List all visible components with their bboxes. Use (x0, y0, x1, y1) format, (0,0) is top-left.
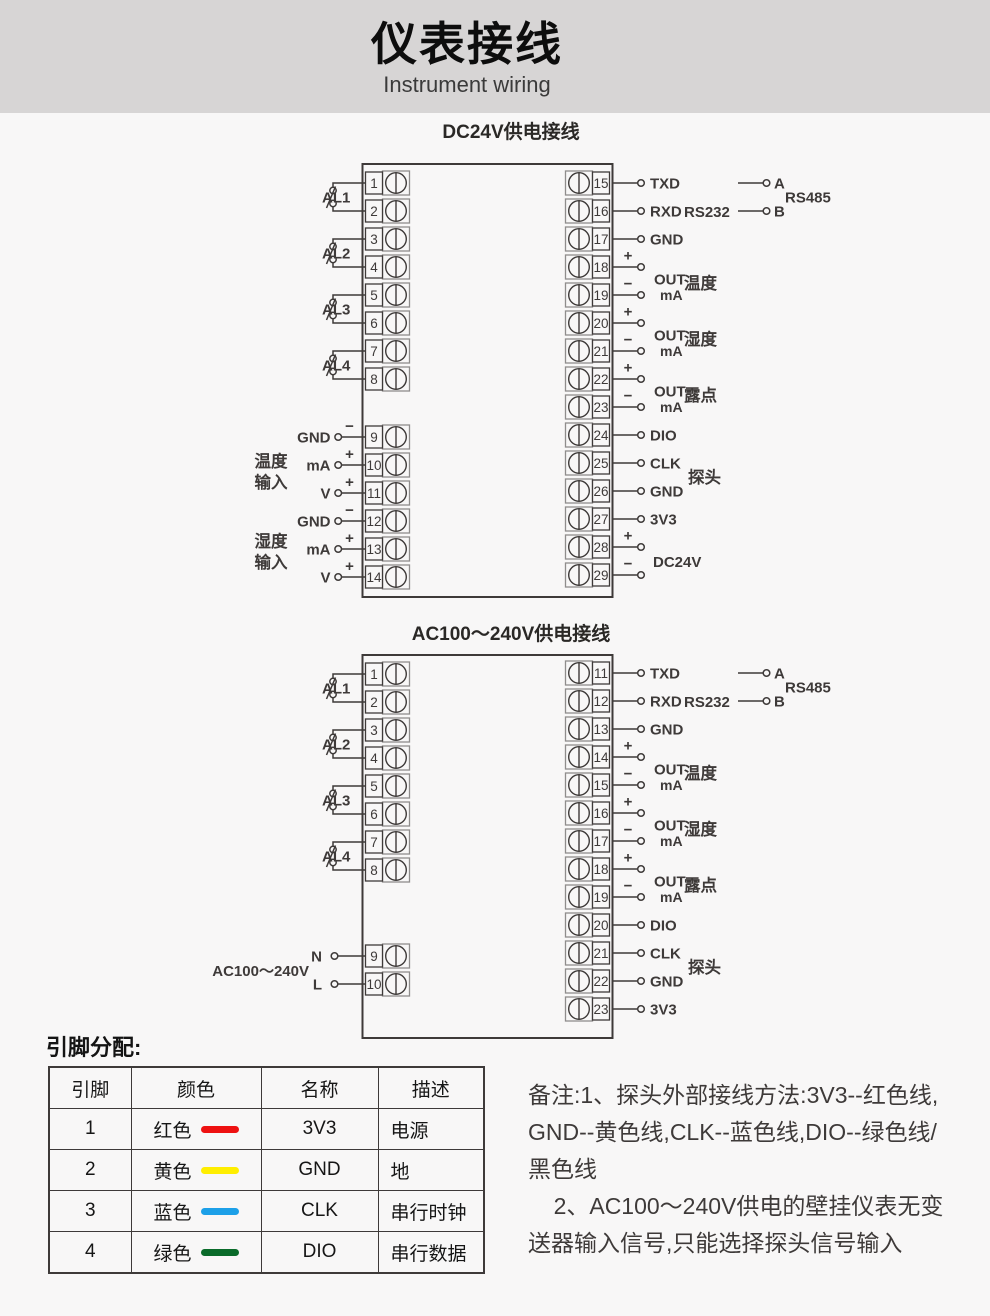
svg-text:温度: 温度 (255, 451, 289, 471)
svg-text:湿度: 湿度 (255, 531, 289, 551)
svg-text:DIO: DIO (650, 428, 677, 445)
svg-text:12: 12 (366, 514, 381, 529)
svg-text:OUT: OUT (654, 818, 686, 835)
svg-text:24: 24 (593, 428, 609, 443)
svg-text:AL3: AL3 (322, 302, 350, 319)
svg-text:温度: 温度 (684, 273, 718, 293)
svg-text:22: 22 (593, 372, 608, 387)
svg-text:AL1: AL1 (322, 190, 350, 207)
svg-text:GND: GND (297, 430, 331, 447)
svg-text:RS485: RS485 (785, 680, 831, 697)
wire-color-cell: 绿色 (131, 1232, 261, 1274)
svg-text:DC24V: DC24V (653, 554, 701, 571)
svg-text:+: + (345, 446, 354, 463)
svg-text:18: 18 (593, 260, 608, 275)
table-header-cell-2: 名称 (261, 1067, 378, 1109)
svg-text:23: 23 (593, 400, 608, 415)
ac-wiring-diagram: 1234567891011121314151617181920212223AL1… (212, 655, 831, 1038)
svg-text:21: 21 (593, 344, 608, 359)
svg-text:17: 17 (593, 834, 608, 849)
svg-text:+: + (345, 558, 354, 575)
wire-color-cell: 红色 (131, 1109, 261, 1150)
signal-name-cell: CLK (261, 1191, 378, 1232)
svg-text:CLK: CLK (650, 946, 681, 963)
signal-desc-cell: 串行时钟 (378, 1191, 484, 1232)
table-body: 1红色3V3电源2黄色GND地3蓝色CLK串行时钟4绿色DIO串行数据 (49, 1109, 484, 1274)
svg-text:GND: GND (650, 484, 684, 501)
svg-text:+: + (624, 794, 633, 811)
signal-name-cell: GND (261, 1150, 378, 1191)
svg-text:OUT: OUT (654, 384, 686, 401)
svg-text:+: + (624, 360, 633, 377)
svg-text:N: N (311, 949, 322, 966)
svg-text:TXD: TXD (650, 176, 680, 193)
svg-text:GND: GND (650, 722, 684, 739)
note-line: 备注:1、探头外部接线方法:3V3--红色线, (528, 1077, 986, 1114)
svg-text:B: B (774, 694, 785, 711)
signal-desc-cell: 串行数据 (378, 1232, 484, 1274)
svg-text:−: − (624, 556, 633, 573)
svg-text:−: − (624, 822, 633, 839)
svg-text:−: − (624, 276, 633, 293)
svg-text:8: 8 (370, 372, 378, 387)
svg-text:RS485: RS485 (785, 190, 831, 207)
wire-color-name: 绿色 (153, 1239, 191, 1266)
svg-text:9: 9 (370, 430, 378, 445)
svg-text:温度: 温度 (684, 763, 718, 783)
svg-text:29: 29 (593, 568, 608, 583)
svg-text:20: 20 (593, 316, 608, 331)
svg-text:mA: mA (660, 889, 683, 905)
diagram1-title: DC24V供电接线 (442, 117, 579, 144)
svg-text:25: 25 (593, 456, 608, 471)
svg-text:mA: mA (660, 399, 683, 415)
notes-text: 备注:1、探头外部接线方法:3V3--红色线,GND--黄色线,CLK--蓝色线… (528, 1077, 986, 1262)
svg-text:27: 27 (593, 512, 608, 527)
svg-text:GND: GND (650, 232, 684, 249)
svg-text:DIO: DIO (650, 918, 677, 935)
note-line: GND--黄色线,CLK--蓝色线,DIO--绿色线/ (528, 1114, 986, 1151)
svg-text:TXD: TXD (650, 666, 680, 683)
svg-text:−: − (624, 332, 633, 349)
svg-text:OUT: OUT (654, 328, 686, 345)
wire-color-name: 红色 (153, 1116, 191, 1143)
svg-text:探头: 探头 (688, 957, 721, 977)
svg-text:19: 19 (593, 890, 608, 905)
svg-text:21: 21 (593, 946, 608, 961)
svg-text:5: 5 (370, 779, 378, 794)
svg-text:湿度: 湿度 (684, 819, 718, 839)
svg-text:2: 2 (370, 695, 378, 710)
svg-text:V: V (320, 570, 330, 587)
signal-name-cell: 3V3 (261, 1109, 378, 1150)
svg-text:mA: mA (660, 343, 683, 359)
svg-text:20: 20 (593, 918, 608, 933)
page: 仪表接线 Instrument wiring 12345678910111213… (0, 0, 990, 1316)
svg-text:22: 22 (593, 974, 608, 989)
wire-color-swatch (201, 1249, 239, 1256)
svg-text:11: 11 (594, 666, 608, 681)
wire-color-swatch (201, 1208, 239, 1215)
svg-text:15: 15 (593, 176, 608, 191)
svg-text:探头: 探头 (688, 467, 721, 487)
svg-text:−: − (345, 502, 354, 519)
svg-text:mA: mA (306, 542, 330, 559)
svg-text:AL2: AL2 (322, 246, 350, 263)
svg-text:23: 23 (593, 1002, 608, 1017)
pin-number-cell: 3 (49, 1191, 131, 1232)
svg-text:露点: 露点 (684, 385, 718, 405)
svg-text:+: + (624, 850, 633, 867)
wire-color-swatch (201, 1126, 239, 1133)
svg-text:11: 11 (367, 486, 381, 501)
pin-number-cell: 1 (49, 1109, 131, 1150)
svg-text:mA: mA (306, 458, 330, 475)
svg-text:3: 3 (370, 232, 378, 247)
svg-text:7: 7 (370, 344, 378, 359)
svg-text:RS232: RS232 (684, 204, 730, 221)
note-line: 2、AC100～240V供电的壁挂仪表无变 (528, 1188, 986, 1225)
svg-text:26: 26 (593, 484, 608, 499)
svg-text:−: − (624, 766, 633, 783)
svg-text:18: 18 (593, 862, 608, 877)
svg-text:湿度: 湿度 (684, 329, 718, 349)
svg-text:−: − (624, 388, 633, 405)
svg-text:A: A (774, 666, 785, 683)
svg-text:RS232: RS232 (684, 694, 730, 711)
svg-text:AL3: AL3 (322, 793, 350, 810)
pin-allocation-table: 引脚颜色名称描述 1红色3V3电源2黄色GND地3蓝色CLK串行时钟4绿色DIO… (48, 1066, 485, 1274)
svg-text:露点: 露点 (684, 875, 718, 895)
pin-table-row: 2黄色GND地 (49, 1150, 484, 1191)
svg-text:A: A (774, 176, 785, 193)
svg-text:输入: 输入 (255, 552, 289, 572)
svg-text:+: + (624, 528, 633, 545)
svg-text:3V3: 3V3 (650, 512, 677, 529)
svg-text:OUT: OUT (654, 272, 686, 289)
wire-color-cell: 蓝色 (131, 1191, 261, 1232)
table-header-row: 引脚颜色名称描述 (49, 1067, 484, 1109)
svg-text:AL1: AL1 (322, 681, 350, 698)
note-line: 黑色线 (528, 1151, 986, 1188)
table-header-cell-0: 引脚 (49, 1067, 131, 1109)
svg-text:+: + (345, 530, 354, 547)
pin-allocation-heading: 引脚分配: (46, 1030, 141, 1062)
svg-text:输入: 输入 (255, 472, 289, 492)
pin-table-row: 4绿色DIO串行数据 (49, 1232, 484, 1274)
wire-color-cell: 黄色 (131, 1150, 261, 1191)
svg-text:+: + (345, 474, 354, 491)
svg-text:10: 10 (366, 977, 381, 992)
svg-text:CLK: CLK (650, 456, 681, 473)
svg-text:7: 7 (370, 835, 378, 850)
svg-text:16: 16 (593, 806, 608, 821)
svg-text:+: + (624, 738, 633, 755)
svg-text:OUT: OUT (654, 874, 686, 891)
pin-table-row: 1红色3V3电源 (49, 1109, 484, 1150)
svg-text:+: + (624, 304, 633, 321)
svg-text:1: 1 (370, 667, 378, 682)
svg-text:AL4: AL4 (322, 358, 351, 375)
svg-text:1: 1 (370, 176, 378, 191)
svg-text:5: 5 (370, 288, 378, 303)
svg-text:mA: mA (660, 287, 683, 303)
svg-text:mA: mA (660, 833, 683, 849)
pin-table-row: 3蓝色CLK串行时钟 (49, 1191, 484, 1232)
svg-text:16: 16 (593, 204, 608, 219)
svg-text:B: B (774, 204, 785, 221)
pin-number-cell: 2 (49, 1150, 131, 1191)
svg-text:6: 6 (370, 807, 378, 822)
table-header-cell-3: 描述 (378, 1067, 484, 1109)
svg-text:V: V (320, 486, 330, 503)
svg-text:+: + (624, 248, 633, 265)
svg-text:15: 15 (593, 778, 608, 793)
svg-text:19: 19 (593, 288, 608, 303)
svg-text:17: 17 (593, 232, 608, 247)
svg-text:L: L (313, 977, 322, 994)
svg-text:14: 14 (366, 570, 382, 585)
svg-text:−: − (345, 418, 354, 435)
svg-text:RXD: RXD (650, 694, 682, 711)
svg-text:10: 10 (366, 458, 381, 473)
svg-text:AL4: AL4 (322, 849, 351, 866)
svg-text:13: 13 (366, 542, 381, 557)
svg-text:4: 4 (370, 751, 378, 766)
wire-color-name: 蓝色 (153, 1198, 191, 1225)
svg-text:AC100～240V: AC100～240V (212, 963, 309, 980)
svg-text:GND: GND (650, 974, 684, 991)
svg-text:RXD: RXD (650, 204, 682, 221)
svg-text:12: 12 (593, 694, 608, 709)
svg-text:mA: mA (660, 777, 683, 793)
diagram2-title: AC100～240V供电接线 (412, 619, 611, 646)
svg-text:−: − (624, 878, 633, 895)
svg-text:14: 14 (593, 750, 609, 765)
svg-text:28: 28 (593, 540, 608, 555)
dc24v-wiring-diagram: 1234567891011121314151617181920212223242… (255, 164, 831, 597)
svg-text:6: 6 (370, 316, 378, 331)
svg-text:2: 2 (370, 204, 378, 219)
signal-desc-cell: 地 (378, 1150, 484, 1191)
pin-number-cell: 4 (49, 1232, 131, 1274)
svg-text:8: 8 (370, 863, 378, 878)
svg-text:4: 4 (370, 260, 378, 275)
table-header-cell-1: 颜色 (131, 1067, 261, 1109)
svg-text:AL2: AL2 (322, 737, 350, 754)
wire-color-name: 黄色 (153, 1157, 191, 1184)
note-line: 送器输入信号,只能选择探头信号输入 (528, 1225, 986, 1262)
svg-text:13: 13 (593, 722, 608, 737)
signal-desc-cell: 电源 (378, 1109, 484, 1150)
svg-text:9: 9 (370, 949, 378, 964)
svg-text:3: 3 (370, 723, 378, 738)
svg-text:GND: GND (297, 514, 331, 531)
wire-color-swatch (201, 1167, 239, 1174)
svg-text:3V3: 3V3 (650, 1002, 677, 1019)
signal-name-cell: DIO (261, 1232, 378, 1274)
svg-text:OUT: OUT (654, 762, 686, 779)
